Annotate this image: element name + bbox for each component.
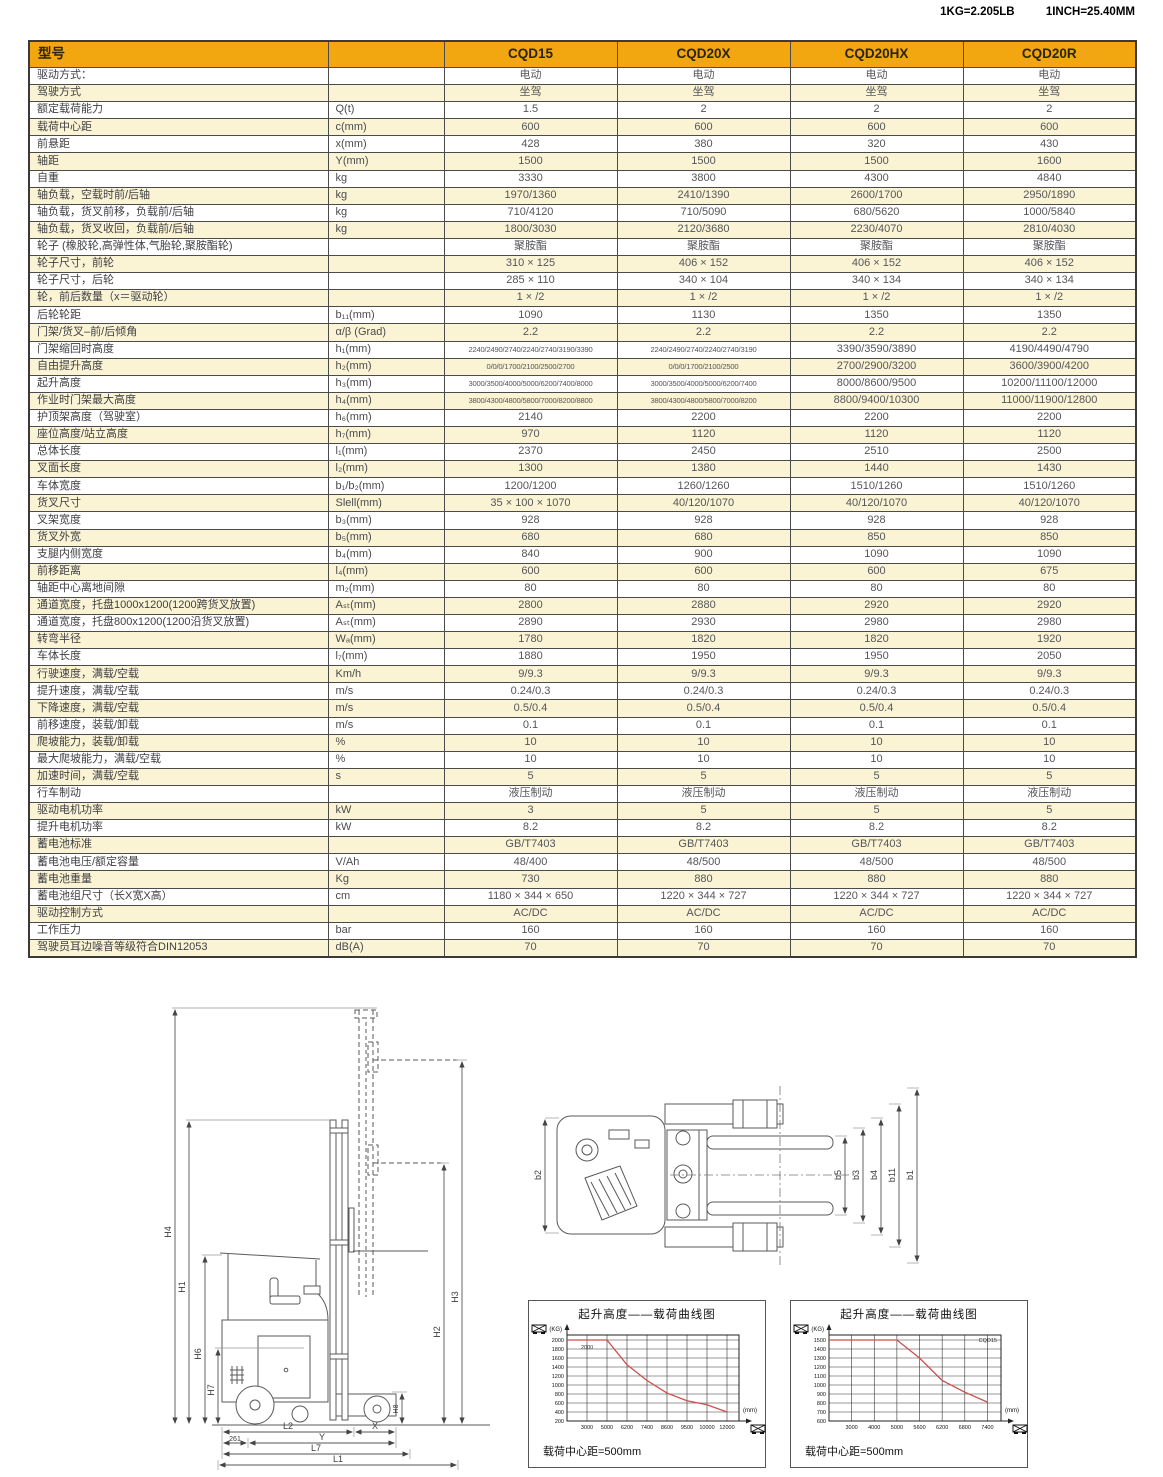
spec-label: 作业时门架最大高度 xyxy=(29,392,328,409)
svg-text:4000: 4000 xyxy=(868,1425,880,1431)
spec-label: 行车制动 xyxy=(29,785,328,802)
spec-value: 3 xyxy=(444,803,617,820)
spec-value: 1970/1360 xyxy=(444,187,617,204)
spec-value: 0.1 xyxy=(963,717,1136,734)
spec-value: 1 × /2 xyxy=(790,290,963,307)
spec-value: AC/DC xyxy=(617,905,790,922)
table-row: 工作压力bar160160160160 xyxy=(29,922,1136,939)
dim-label-b4: b4 xyxy=(869,1170,879,1180)
spec-value: 1950 xyxy=(617,649,790,666)
spec-value: 1780 xyxy=(444,632,617,649)
spec-label: 前悬距 xyxy=(29,136,328,153)
dim-label-261: 261 xyxy=(229,1436,241,1443)
spec-value: 11000/11900/12800 xyxy=(963,392,1136,409)
spec-unit: kg xyxy=(328,187,444,204)
spec-label: 自重 xyxy=(29,170,328,187)
spec-label: 轴负载，货叉收回，负载前/后轴 xyxy=(29,221,328,238)
table-row: 轮子 (橡胶轮,高弹性体,气胎轮,聚胺酯轮)聚胺酯聚胺酯聚胺酯聚胺酯 xyxy=(29,238,1136,255)
spec-value: 2240/2490/2740/2240/2740/3190/3390 xyxy=(444,341,617,358)
spec-value: 9/9.3 xyxy=(963,666,1136,683)
table-row: 货叉外宽b₅(mm)680680850850 xyxy=(29,529,1136,546)
spec-value: 8000/8600/9500 xyxy=(790,375,963,392)
spec-value: 3600/3900/4200 xyxy=(963,358,1136,375)
spec-value: 10 xyxy=(617,734,790,751)
spec-sheet-page: { "page": {"conversion_note_kg": "1KG=2.… xyxy=(0,0,1163,1477)
table-row: 轮子尺寸，前轮310 × 125406 × 152406 × 152406 × … xyxy=(29,256,1136,273)
spec-value: 2950/1890 xyxy=(963,187,1136,204)
spec-label: 蓄电池重量 xyxy=(29,871,328,888)
pallet-load-icon xyxy=(794,1325,808,1334)
dim-label-b3: b3 xyxy=(851,1170,861,1180)
spec-unit: m₂(mm) xyxy=(328,580,444,597)
spec-value: 48/500 xyxy=(617,854,790,871)
spec-value: 320 xyxy=(790,136,963,153)
spec-value: 0/0/0/1700/2100/2500 xyxy=(617,358,790,375)
spec-value: 4300 xyxy=(790,170,963,187)
chart-title: 起升高度——载荷曲线图 xyxy=(529,1306,765,1322)
spec-value: 80 xyxy=(444,580,617,597)
spec-label: 驱动电机功率 xyxy=(29,803,328,820)
spec-label: 轮子尺寸，前轮 xyxy=(29,256,328,273)
svg-text:5000: 5000 xyxy=(601,1425,613,1431)
spec-value: 730 xyxy=(444,871,617,888)
spec-value: 880 xyxy=(617,871,790,888)
table-row: 轮子尺寸，后轮285 × 110340 × 104340 × 134340 × … xyxy=(29,273,1136,290)
spec-value: 8.2 xyxy=(790,820,963,837)
spec-unit xyxy=(328,85,444,102)
spec-value: 2810/4030 xyxy=(963,221,1136,238)
table-row: 车体宽度b₁/b₂(mm)1200/12001260/12601510/1260… xyxy=(29,478,1136,495)
spec-value: 5 xyxy=(790,803,963,820)
spec-value: 5 xyxy=(617,768,790,785)
spec-unit xyxy=(328,256,444,273)
spec-value: 2 xyxy=(790,102,963,119)
spec-value: 聚胺酯 xyxy=(444,238,617,255)
spec-value: 2200 xyxy=(790,409,963,426)
spec-value: 70 xyxy=(963,939,1136,957)
spec-value: 1 × /2 xyxy=(963,290,1136,307)
spec-value: 电动 xyxy=(963,68,1136,85)
table-row: 起升高度h₃(mm)3000/3500/4000/5000/6200/7400/… xyxy=(29,375,1136,392)
svg-text:1200: 1200 xyxy=(814,1365,826,1371)
top-view-drawing: b2 b5 b3 b4 b11 b1 xyxy=(525,1078,945,1273)
spec-value: 2700/2900/3200 xyxy=(790,358,963,375)
table-row: 自由提升高度h₂(mm)0/0/0/1700/2100/2500/27000/0… xyxy=(29,358,1136,375)
spec-value: 2230/4070 xyxy=(790,221,963,238)
svg-text:9500: 9500 xyxy=(681,1425,693,1431)
spec-value: 710/4120 xyxy=(444,204,617,221)
svg-text:(mm): (mm) xyxy=(743,1408,757,1414)
spec-value: 600 xyxy=(790,119,963,136)
spec-label: 支腿内侧宽度 xyxy=(29,546,328,563)
spec-value: 710/5090 xyxy=(617,204,790,221)
dim-label-l7: L7 xyxy=(311,1443,321,1453)
spec-value: 928 xyxy=(617,512,790,529)
spec-value: 3800/4300/4800/5800/7000/8200 xyxy=(617,392,790,409)
spec-value: 2.2 xyxy=(963,324,1136,341)
model-header-cqd20x: CQD20X xyxy=(617,41,790,68)
spec-value: 2370 xyxy=(444,444,617,461)
spec-value: AC/DC xyxy=(444,905,617,922)
svg-text:1500: 1500 xyxy=(814,1338,826,1344)
chart-title: 起升高度——载荷曲线图 xyxy=(791,1306,1027,1322)
spec-value: 80 xyxy=(790,580,963,597)
spec-value: 10 xyxy=(963,751,1136,768)
pallet-load-icon xyxy=(532,1325,546,1334)
spec-unit: % xyxy=(328,734,444,751)
table-row: 转弯半径Wₐ(mm)1780182018201920 xyxy=(29,632,1136,649)
spec-value: 2980 xyxy=(963,615,1136,632)
spec-value: 10 xyxy=(444,751,617,768)
spec-value: 4190/4490/4790 xyxy=(963,341,1136,358)
table-row: 额定载荷能力Q(t)1.5222 xyxy=(29,102,1136,119)
spec-label: 驾驶方式 xyxy=(29,85,328,102)
table-row: 门架/货叉–前/后倾角α/β (Grad)2.22.22.22.2 xyxy=(29,324,1136,341)
spec-value: 1800/3030 xyxy=(444,221,617,238)
spec-unit: m/s xyxy=(328,717,444,734)
spec-unit xyxy=(328,238,444,255)
spec-label: 提升电机功率 xyxy=(29,820,328,837)
spec-value: 600 xyxy=(444,563,617,580)
svg-text:(KG): (KG) xyxy=(549,1327,562,1333)
spec-unit: Kg xyxy=(328,871,444,888)
table-row: 驾驶方式坐驾坐驾坐驾坐驾 xyxy=(29,85,1136,102)
spec-value: 5 xyxy=(963,768,1136,785)
spec-label: 轮子尺寸，后轮 xyxy=(29,273,328,290)
model-header-cqd20r: CQD20R xyxy=(963,41,1136,68)
spec-value: 600 xyxy=(444,119,617,136)
spec-unit: b₁₁(mm) xyxy=(328,307,444,324)
spec-value: 340 × 104 xyxy=(617,273,790,290)
spec-unit: Km/h xyxy=(328,666,444,683)
load-curve-chart-1: 起升高度——载荷曲线图 2004006008001000120014001600… xyxy=(528,1300,766,1468)
svg-text:5000: 5000 xyxy=(891,1425,903,1431)
load-curve xyxy=(829,1340,987,1402)
spec-value: 160 xyxy=(617,922,790,939)
spec-value: 8800/9400/10300 xyxy=(790,392,963,409)
table-row: 驱动控制方式AC/DCAC/DCAC/DCAC/DC xyxy=(29,905,1136,922)
svg-text:3000: 3000 xyxy=(846,1425,858,1431)
spec-unit: Q(t) xyxy=(328,102,444,119)
spec-value: 液压制动 xyxy=(444,785,617,802)
dim-label-h6: H6 xyxy=(193,1348,203,1360)
spec-label: 下降速度，满载/空载 xyxy=(29,700,328,717)
table-row: 后轮轮距b₁₁(mm)1090113013501350 xyxy=(29,307,1136,324)
spec-value: 70 xyxy=(617,939,790,957)
spec-unit xyxy=(328,837,444,854)
spec-unit: h₇(mm) xyxy=(328,426,444,443)
spec-value: 880 xyxy=(963,871,1136,888)
table-row: 门架缩回时高度h₁(mm)2240/2490/2740/2240/2740/31… xyxy=(29,341,1136,358)
spec-value: 液压制动 xyxy=(790,785,963,802)
spec-unit: b₁/b₂(mm) xyxy=(328,478,444,495)
spec-value: 850 xyxy=(790,529,963,546)
dim-label-h4: H4 xyxy=(163,1226,173,1238)
spec-value: 70 xyxy=(790,939,963,957)
spec-value: 48/500 xyxy=(963,854,1136,871)
spec-value: 1500 xyxy=(444,153,617,170)
spec-value: 聚胺酯 xyxy=(963,238,1136,255)
chart-plot: 2004006008001000120014001600180020003000… xyxy=(529,1323,767,1443)
spec-value: 9/9.3 xyxy=(444,666,617,683)
dim-label-x: X xyxy=(372,1421,378,1431)
spec-value: 1090 xyxy=(963,546,1136,563)
pallet-load-icon xyxy=(1013,1425,1027,1434)
spec-value: GB/T7403 xyxy=(790,837,963,854)
spec-unit xyxy=(328,905,444,922)
spec-unit: h₆(mm) xyxy=(328,409,444,426)
spec-value: 8.2 xyxy=(617,820,790,837)
spec-value: 0/0/0/1700/2100/2500/2700 xyxy=(444,358,617,375)
table-row: 前移距离l₄(mm)600600600675 xyxy=(29,563,1136,580)
unit-column-header xyxy=(328,41,444,68)
table-row: 提升电机功率kW8.28.28.28.2 xyxy=(29,820,1136,837)
table-row: 蓄电池标准GB/T7403GB/T7403GB/T7403GB/T7403 xyxy=(29,837,1136,854)
spec-label: 驱动控制方式 xyxy=(29,905,328,922)
spec-value: 680 xyxy=(444,529,617,546)
spec-label: 蓄电池电压/额定容量 xyxy=(29,854,328,871)
spec-value: 电动 xyxy=(444,68,617,85)
spec-value: 1120 xyxy=(790,426,963,443)
load-curve-chart-2: 起升高度——载荷曲线图 6007008009001000110012001300… xyxy=(790,1300,1028,1468)
spec-value: 2050 xyxy=(963,649,1136,666)
spec-value: 40/120/1070 xyxy=(790,495,963,512)
spec-value: 928 xyxy=(444,512,617,529)
spec-value: 40/120/1070 xyxy=(963,495,1136,512)
dim-label-b2: b2 xyxy=(533,1170,543,1180)
spec-value: 680/5620 xyxy=(790,204,963,221)
spec-unit: kg xyxy=(328,170,444,187)
svg-text:(KG): (KG) xyxy=(811,1327,824,1333)
svg-text:7400: 7400 xyxy=(981,1425,993,1431)
dim-label-h2: H2 xyxy=(432,1326,442,1338)
dim-label-l1: L1 xyxy=(333,1454,343,1464)
spec-value: 0.5/0.4 xyxy=(617,700,790,717)
spec-unit: h₂(mm) xyxy=(328,358,444,375)
spec-value: 680 xyxy=(617,529,790,546)
spec-value: 5 xyxy=(444,768,617,785)
spec-unit: l₁(mm) xyxy=(328,444,444,461)
spec-value: 10 xyxy=(790,751,963,768)
spec-value: 5 xyxy=(617,803,790,820)
spec-value: 35 × 100 × 1070 xyxy=(444,495,617,512)
spec-label: 轴负载，空载时前/后轴 xyxy=(29,187,328,204)
dim-label-b11: b11 xyxy=(887,1168,897,1182)
spec-value: 1820 xyxy=(617,632,790,649)
spec-value: 坐驾 xyxy=(617,85,790,102)
spec-value: 3800/4300/4800/5800/7000/8200/8800 xyxy=(444,392,617,409)
spec-value: 1220 × 344 × 727 xyxy=(963,888,1136,905)
spec-value: 8.2 xyxy=(444,820,617,837)
table-row: 前悬距x(mm)428380320430 xyxy=(29,136,1136,153)
spec-value: 1180 × 344 × 650 xyxy=(444,888,617,905)
spec-label: 轴负载，货叉前移，负载前/后轴 xyxy=(29,204,328,221)
spec-value: 285 × 110 xyxy=(444,273,617,290)
table-row: 驱动方式：电动电动电动电动 xyxy=(29,68,1136,85)
spec-unit: kW xyxy=(328,820,444,837)
spec-unit: h₁(mm) xyxy=(328,341,444,358)
table-row: 蓄电池组尺寸（长X宽X高）cm1180 × 344 × 6501220 × 34… xyxy=(29,888,1136,905)
spec-unit: s xyxy=(328,768,444,785)
spec-unit: c(mm) xyxy=(328,119,444,136)
spec-value: 1920 xyxy=(963,632,1136,649)
spec-value: 160 xyxy=(444,922,617,939)
chart-caption: 载荷中心距=500mm xyxy=(805,1443,1027,1459)
table-row: 行驶速度，满载/空载Km/h9/9.39/9.39/9.39/9.3 xyxy=(29,666,1136,683)
spec-unit: l₄(mm) xyxy=(328,563,444,580)
spec-unit: kg xyxy=(328,221,444,238)
spec-label: 后轮轮距 xyxy=(29,307,328,324)
spec-unit xyxy=(328,290,444,307)
unit-conversion-note: 1KG=2.205LB 1INCH=25.40MM xyxy=(912,6,1135,18)
spec-value: 1820 xyxy=(790,632,963,649)
table-row: 护顶架高度（驾驶室）h₆(mm)2140220022002200 xyxy=(29,409,1136,426)
spec-value: 840 xyxy=(444,546,617,563)
pallet-load-icon xyxy=(751,1425,765,1434)
spec-value: 48/500 xyxy=(790,854,963,871)
spec-value: 2410/1390 xyxy=(617,187,790,204)
table-row: 作业时门架最大高度h₄(mm)3800/4300/4800/5800/7000/… xyxy=(29,392,1136,409)
dim-label-h3: H3 xyxy=(450,1291,460,1303)
table-row: 提升速度，满载/空载m/s0.24/0.30.24/0.30.24/0.30.2… xyxy=(29,683,1136,700)
spec-unit: b₃(mm) xyxy=(328,512,444,529)
svg-text:6200: 6200 xyxy=(936,1425,948,1431)
spec-label: 起升高度 xyxy=(29,375,328,392)
spec-value: 48/400 xyxy=(444,854,617,871)
spec-unit: m/s xyxy=(328,683,444,700)
spec-value: 坐驾 xyxy=(963,85,1136,102)
spec-value: 1880 xyxy=(444,649,617,666)
spec-label: 额定载荷能力 xyxy=(29,102,328,119)
spec-label: 蓄电池组尺寸（长X宽X高） xyxy=(29,888,328,905)
spec-value: 40/120/1070 xyxy=(617,495,790,512)
spec-unit: Wₐ(mm) xyxy=(328,632,444,649)
spec-value: 0.24/0.3 xyxy=(617,683,790,700)
spec-value: 600 xyxy=(617,563,790,580)
spec-label: 轴距 xyxy=(29,153,328,170)
svg-text:600: 600 xyxy=(817,1419,826,1425)
spec-value: 340 × 134 xyxy=(963,273,1136,290)
spec-unit: cm xyxy=(328,888,444,905)
spec-label: 货叉尺寸 xyxy=(29,495,328,512)
dim-label-h8: H8 xyxy=(393,1404,400,1413)
dim-label-h7: H7 xyxy=(206,1384,216,1396)
spec-value: 5 xyxy=(790,768,963,785)
svg-text:10000: 10000 xyxy=(699,1425,714,1431)
spec-label: 轴距中心离地间隙 xyxy=(29,580,328,597)
table-row: 蓄电池电压/额定容量V/Ah48/40048/50048/50048/500 xyxy=(29,854,1136,871)
spec-value: 1090 xyxy=(444,307,617,324)
table-row: 通道宽度，托盘1000x1200(1200跨货叉放置)Aₛₜ(mm)280028… xyxy=(29,597,1136,614)
spec-label: 轮，前后数量（x＝驱动轮） xyxy=(29,290,328,307)
table-row: 行车制动液压制动液压制动液压制动液压制动 xyxy=(29,785,1136,802)
spec-unit xyxy=(328,68,444,85)
spec-value: 1500 xyxy=(617,153,790,170)
spec-value: 2510 xyxy=(790,444,963,461)
spec-value: 1120 xyxy=(963,426,1136,443)
spec-value: 2 xyxy=(963,102,1136,119)
svg-text:900: 900 xyxy=(817,1392,826,1398)
spec-value: 900 xyxy=(617,546,790,563)
spec-value: 1260/1260 xyxy=(617,478,790,495)
spec-unit: kW xyxy=(328,803,444,820)
spec-value: 970 xyxy=(444,426,617,443)
svg-text:6800: 6800 xyxy=(959,1425,971,1431)
svg-text:700: 700 xyxy=(817,1410,826,1416)
spec-value: 0.24/0.3 xyxy=(790,683,963,700)
svg-text:1400: 1400 xyxy=(814,1347,826,1353)
spec-value: 928 xyxy=(790,512,963,529)
spec-label: 加速时间，满载/空载 xyxy=(29,768,328,785)
spec-value: 2880 xyxy=(617,597,790,614)
spec-value: 1510/1260 xyxy=(963,478,1136,495)
spec-value: 10 xyxy=(963,734,1136,751)
spec-value: 2 xyxy=(617,102,790,119)
spec-value: 1 × /2 xyxy=(617,290,790,307)
spec-value: 1090 xyxy=(790,546,963,563)
spec-value: 406 × 152 xyxy=(963,256,1136,273)
spec-table: 型号 CQD15 CQD20X CQD20HX CQD20R 驱动方式：电动电动… xyxy=(28,40,1137,958)
spec-value: 电动 xyxy=(617,68,790,85)
spec-value: 1 × /2 xyxy=(444,290,617,307)
table-row: 叉架宽度b₃(mm)928928928928 xyxy=(29,512,1136,529)
table-row: 轴负载，货叉前移，负载前/后轴kg710/4120710/5090680/562… xyxy=(29,204,1136,221)
spec-label: 通道宽度，托盘800x1200(1200沿货叉放置) xyxy=(29,615,328,632)
spec-value: 2500 xyxy=(963,444,1136,461)
svg-text:800: 800 xyxy=(555,1392,564,1398)
table-row: 爬坡能力，装载/卸载%10101010 xyxy=(29,734,1136,751)
spec-label: 前移距离 xyxy=(29,563,328,580)
svg-text:6200: 6200 xyxy=(621,1425,633,1431)
spec-label: 通道宽度，托盘1000x1200(1200跨货叉放置) xyxy=(29,597,328,614)
spec-value: 10 xyxy=(444,734,617,751)
spec-unit: dB(A) xyxy=(328,939,444,957)
spec-value: 1510/1260 xyxy=(790,478,963,495)
spec-unit: b₅(mm) xyxy=(328,529,444,546)
spec-value: 0.24/0.3 xyxy=(444,683,617,700)
table-row: 叉面长度l₂(mm)1300138014401430 xyxy=(29,461,1136,478)
svg-text:(mm): (mm) xyxy=(1005,1408,1019,1414)
spec-value: 0.1 xyxy=(444,717,617,734)
spec-value: 1380 xyxy=(617,461,790,478)
spec-value: 1350 xyxy=(790,307,963,324)
table-row: 最大爬坡能力，满载/空载%10101010 xyxy=(29,751,1136,768)
spec-value: GB/T7403 xyxy=(963,837,1136,854)
svg-text:2000: 2000 xyxy=(552,1338,564,1344)
spec-label: 前移速度，装载/卸载 xyxy=(29,717,328,734)
dim-label-b1: b1 xyxy=(905,1170,915,1180)
table-row: 支腿内侧宽度b₄(mm)84090010901090 xyxy=(29,546,1136,563)
svg-text:1800: 1800 xyxy=(552,1347,564,1353)
spec-label: 转弯半径 xyxy=(29,632,328,649)
spec-value: 2.2 xyxy=(790,324,963,341)
svg-text:200: 200 xyxy=(555,1419,564,1425)
spec-label: 工作压力 xyxy=(29,922,328,939)
svg-text:600: 600 xyxy=(555,1401,564,1407)
kg-conversion: 1KG=2.205LB xyxy=(940,6,1014,18)
spec-value: 70 xyxy=(444,939,617,957)
spec-value: 2600/1700 xyxy=(790,187,963,204)
table-row: 蓄电池重量Kg730880880880 xyxy=(29,871,1136,888)
svg-text:1200: 1200 xyxy=(552,1374,564,1380)
table-row: 前移速度，装载/卸载m/s0.10.10.10.1 xyxy=(29,717,1136,734)
spec-label: 护顶架高度（驾驶室） xyxy=(29,409,328,426)
table-row: 车体长度l₇(mm)1880195019502050 xyxy=(29,649,1136,666)
spec-unit: m/s xyxy=(328,700,444,717)
svg-text:8600: 8600 xyxy=(661,1425,673,1431)
table-row: 座位高度/站立高度h₇(mm)970112011201120 xyxy=(29,426,1136,443)
spec-unit: % xyxy=(328,751,444,768)
